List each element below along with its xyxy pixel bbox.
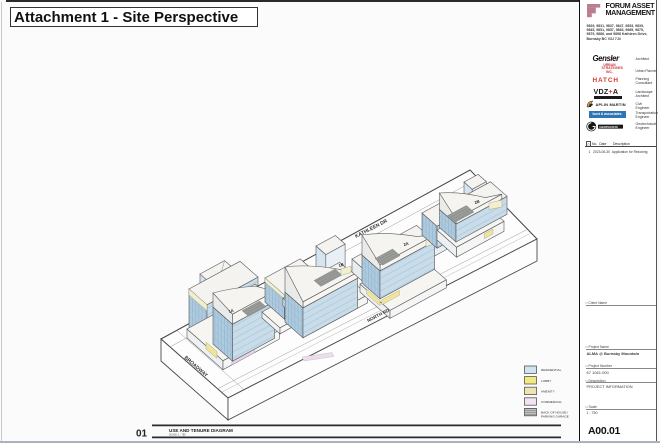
svg-text:LOBBY: LOBBY — [541, 379, 551, 383]
svg-text:USE AND TENURE DIAGRAM: USE AND TENURE DIAGRAM — [169, 428, 233, 433]
svg-text:GEOPACIFIC: GEOPACIFIC — [599, 124, 619, 128]
svg-text:01: 01 — [136, 429, 148, 440]
svg-text:SCALE: 1 : 750: SCALE: 1 : 750 — [169, 434, 186, 437]
svg-text:RESIDENTIAL: RESIDENTIAL — [541, 368, 562, 372]
svg-text:COMMERCIAL: COMMERCIAL — [541, 400, 562, 404]
svg-text:PARKING GARAGE: PARKING GARAGE — [541, 415, 569, 419]
svg-text:AMENITY: AMENITY — [541, 389, 555, 393]
